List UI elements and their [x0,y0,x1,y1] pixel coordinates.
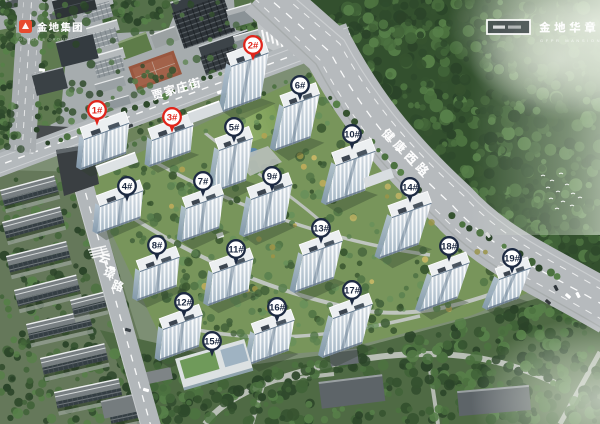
svg-text:17#: 17# [344,285,361,296]
svg-text:10#: 10# [344,129,361,140]
svg-text:9#: 9# [267,171,278,182]
svg-text:11#: 11# [228,244,244,255]
svg-text:8#: 8# [152,240,163,251]
svg-text:13#: 13# [313,223,330,234]
svg-text:19#: 19# [504,253,521,264]
svg-text:7#: 7# [198,176,209,187]
svg-text:18#: 18# [441,241,458,252]
svg-text:16#: 16# [269,302,286,313]
svg-text:5#: 5# [229,122,240,133]
svg-text:GFPR MANSION: GFPR MANSION [540,38,600,43]
svg-text:GEMDALE GROUP: GEMDALE GROUP [19,37,69,42]
svg-text:14#: 14# [402,182,419,193]
svg-text:15#: 15# [204,336,221,347]
svg-text:2#: 2# [248,40,259,51]
svg-text:4#: 4# [122,181,133,192]
svg-text:6#: 6# [295,80,306,91]
svg-text:3#: 3# [167,112,178,123]
svg-text:1#: 1# [92,105,103,116]
svg-text:12#: 12# [176,297,193,308]
